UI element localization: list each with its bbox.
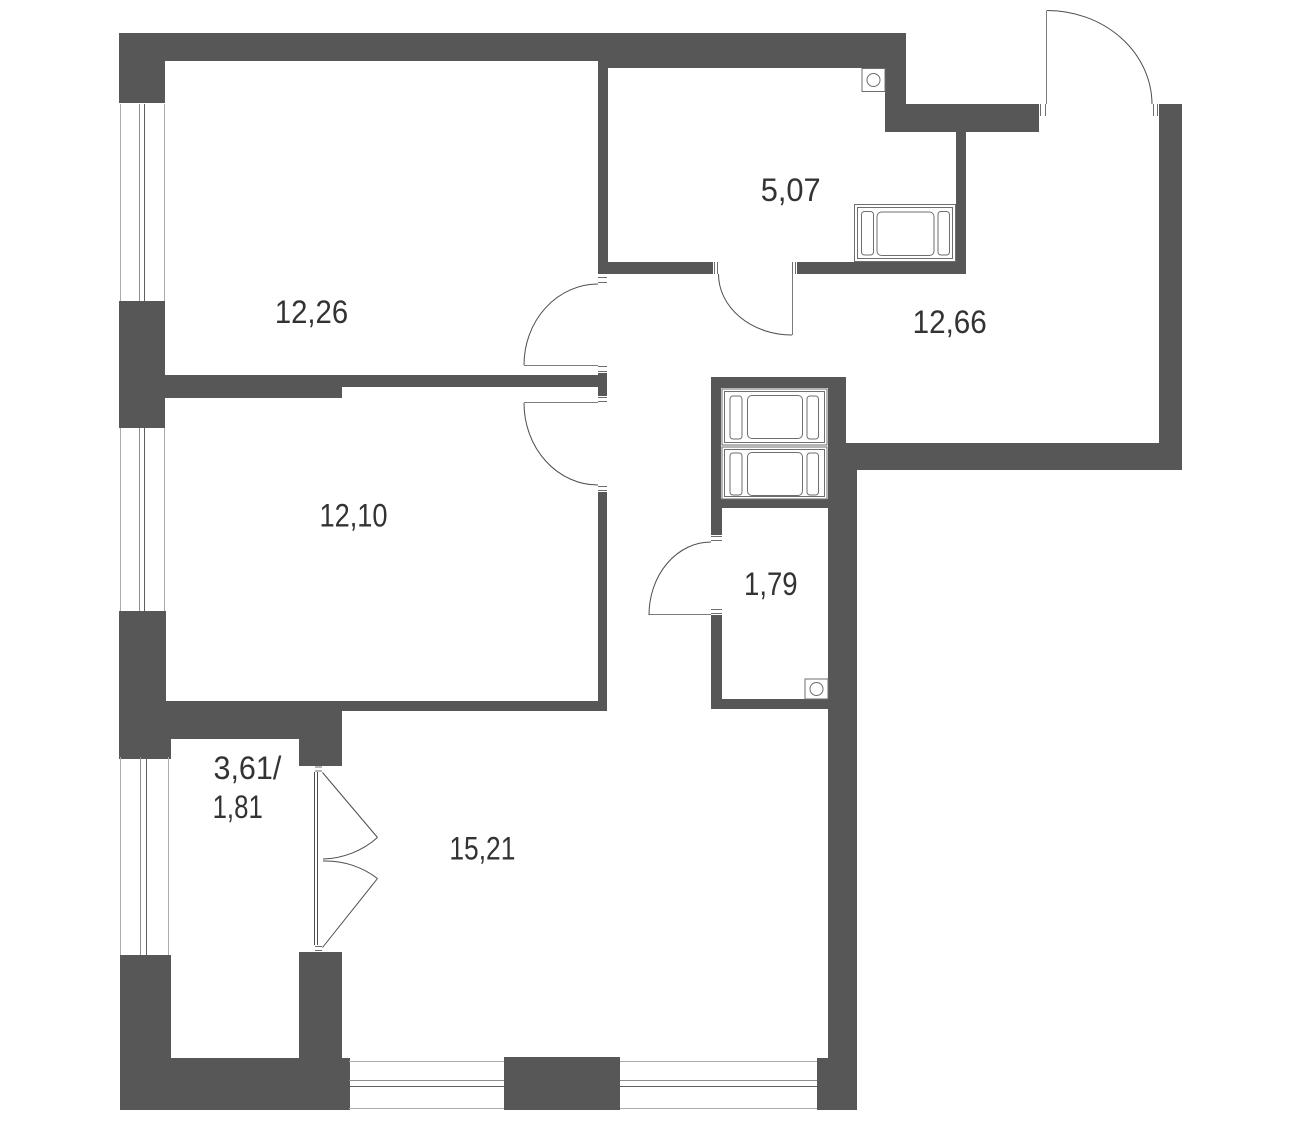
svg-text:12,66: 12,66 (913, 304, 987, 340)
svg-text:5,07: 5,07 (761, 172, 821, 208)
svg-text:1,79: 1,79 (744, 566, 798, 602)
svg-text:1,81: 1,81 (213, 789, 263, 825)
svg-text:3,61/: 3,61/ (214, 750, 283, 786)
svg-text:12,26: 12,26 (275, 294, 348, 330)
svg-text:12,10: 12,10 (319, 497, 387, 533)
svg-text:15,21: 15,21 (449, 830, 515, 866)
